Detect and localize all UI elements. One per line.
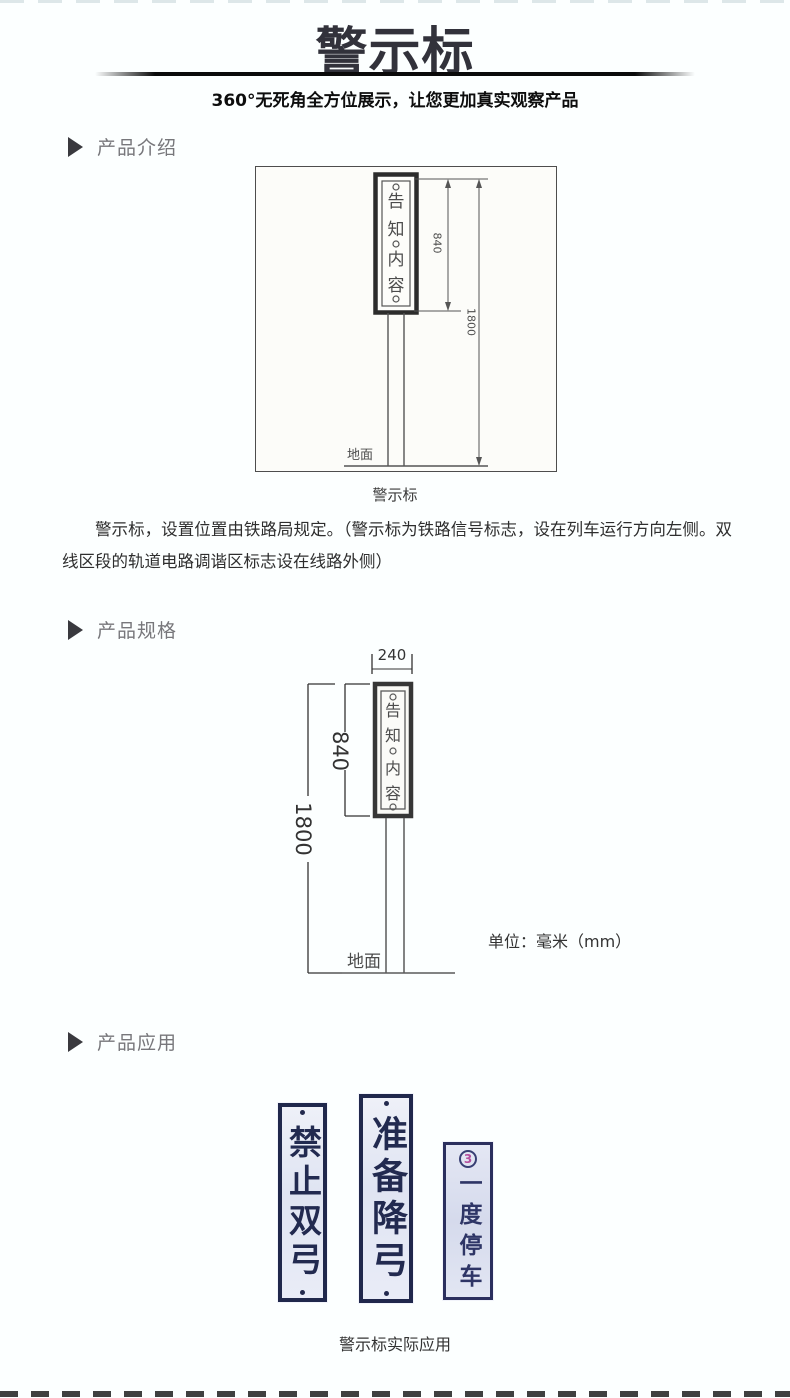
section-header-spec: 产品规格 (68, 616, 177, 643)
screw-hole-icon (384, 1101, 389, 1106)
ground-label: 地面 (347, 448, 373, 463)
dim-240-label: 240 (378, 646, 407, 664)
arrow-up-icon (476, 179, 482, 188)
section-header-intro: 产品介绍 (68, 133, 177, 160)
intro-diagram: 告 知 内 容 地面 840 1800 (255, 166, 557, 472)
dim-840-label: 840 (328, 731, 352, 771)
section-arrow-icon (68, 137, 83, 157)
sign-char: 告 (385, 701, 401, 720)
arrow-down-icon (445, 302, 451, 311)
dim-1800-label: 1800 (465, 308, 478, 336)
sign-photo-one-stop: 3 一度停车 (443, 1142, 493, 1300)
section-header-app: 产品应用 (68, 1028, 177, 1055)
bottom-dashed-border (0, 1391, 790, 1397)
dim-840-label: 840 (431, 233, 444, 254)
sign-char: 告 (388, 192, 405, 212)
sign-char: 内 (385, 759, 401, 778)
sign-char: 容 (385, 784, 401, 803)
sign-char: 容 (388, 276, 405, 296)
sign-text: 禁止双弓 (279, 1118, 327, 1287)
sign-post-drawing: 告 知 内 容 地面 840 1800 (256, 167, 555, 470)
spec-diagram: 240 告 知 内 容 地面 840 1800 (290, 646, 510, 990)
section-label: 产品介绍 (97, 133, 177, 160)
arrow-down-icon (476, 457, 482, 466)
sign-photo-prepare-lower-pantograph: 准备降弓 (359, 1094, 413, 1303)
badge-3-icon: 3 (459, 1150, 477, 1168)
application-caption: 警示标实际应用 (0, 1331, 790, 1355)
diagram-caption: 警示标 (0, 484, 790, 505)
title-divider (95, 72, 695, 76)
sign-text: 准备降弓 (360, 1109, 412, 1288)
section-label: 产品应用 (97, 1028, 177, 1055)
unit-label: 单位：毫米（mm） (488, 928, 631, 952)
product-detail-page: 警示标 360°无死角全方位展示，让您更加真实观察产品 产品介绍 告 知 内 容… (0, 0, 790, 1398)
sign-char: 内 (388, 250, 405, 270)
page-subtitle: 360°无死角全方位展示，让您更加真实观察产品 (0, 86, 790, 111)
section-arrow-icon (68, 620, 83, 640)
screw-hole-icon (384, 1291, 389, 1296)
sign-photo-no-double-pantograph: 禁止双弓 (278, 1103, 327, 1302)
section-label: 产品规格 (97, 616, 177, 643)
intro-paragraph: 警示标，设置位置由铁路局规定。（警示标为铁路信号标志，设在列车运行方向左侧。双线… (62, 514, 732, 578)
sign-text: 一度停车 (451, 1168, 485, 1297)
sign-char: 知 (388, 220, 405, 240)
section-arrow-icon (68, 1032, 83, 1052)
sign-char: 知 (385, 726, 401, 745)
arrow-up-icon (445, 179, 451, 188)
dim-1800-label: 1800 (291, 802, 315, 855)
screw-hole-icon (300, 1290, 305, 1295)
screw-hole-icon (300, 1110, 305, 1115)
ground-label: 地面 (347, 952, 381, 972)
top-dashed-border (0, 0, 790, 3)
